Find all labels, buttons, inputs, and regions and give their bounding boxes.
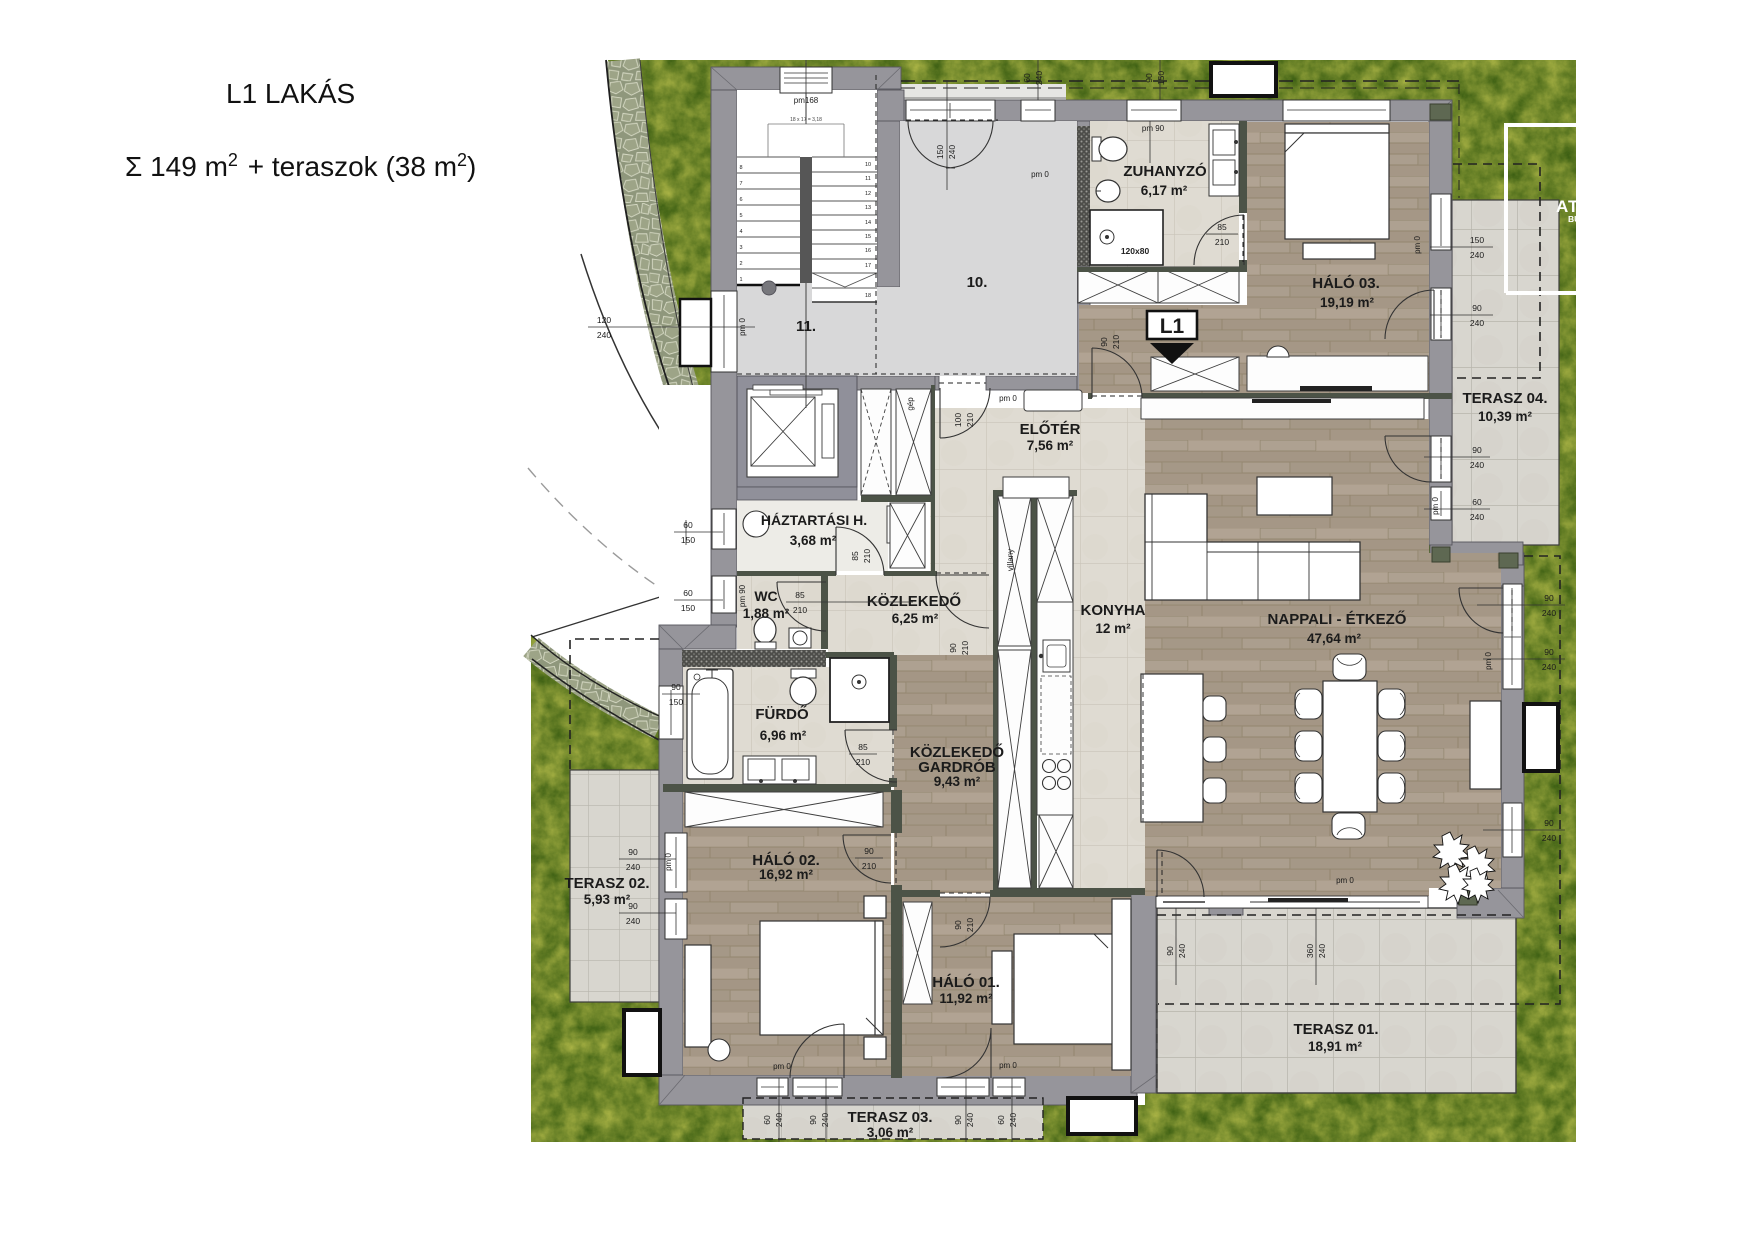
svg-text:10.: 10.: [967, 274, 988, 291]
svg-text:90: 90: [953, 920, 963, 930]
svg-text:2: 2: [739, 261, 742, 267]
svg-text:3: 3: [739, 245, 742, 251]
svg-text:villany: villany: [1006, 549, 1015, 571]
svg-text:HÁLÓ 03.: HÁLÓ 03.: [1312, 274, 1380, 292]
svg-text:9,43 m²: 9,43 m²: [934, 774, 981, 789]
svg-text:NAPPALI - ÉTKEZŐ: NAPPALI - ÉTKEZŐ: [1268, 610, 1407, 628]
svg-text:pm 0: pm 0: [1413, 236, 1422, 254]
svg-text:240: 240: [626, 862, 640, 872]
svg-text:17: 17: [865, 263, 871, 269]
svg-text:60: 60: [762, 1115, 772, 1125]
svg-text:TERASZ 02.: TERASZ 02.: [564, 875, 649, 892]
svg-text:240: 240: [1470, 250, 1484, 260]
svg-text:90: 90: [808, 1115, 818, 1125]
svg-text:90: 90: [1099, 337, 1109, 347]
svg-text:pm 0: pm 0: [1336, 876, 1354, 885]
svg-text:ELŐTÉR: ELŐTÉR: [1020, 420, 1081, 438]
svg-text:90: 90: [671, 682, 681, 692]
svg-text:90: 90: [1165, 946, 1175, 956]
svg-text:85: 85: [850, 551, 860, 561]
svg-text:pm 0: pm 0: [1031, 170, 1049, 179]
svg-text:240: 240: [1470, 318, 1484, 328]
svg-text:Σ 149 m2 + teraszok (38 m2): Σ 149 m2 + teraszok (38 m2): [125, 150, 476, 182]
svg-text:90: 90: [1144, 73, 1154, 83]
svg-text:150: 150: [1470, 235, 1484, 245]
svg-text:150: 150: [935, 145, 945, 159]
svg-text:240: 240: [1034, 71, 1044, 85]
svg-text:1: 1: [739, 277, 742, 283]
svg-text:TERASZ 01.: TERASZ 01.: [1293, 1021, 1378, 1038]
svg-text:6,96 m²: 6,96 m²: [760, 728, 807, 743]
svg-text:pm 0: pm 0: [1431, 497, 1440, 515]
svg-text:90: 90: [1544, 593, 1554, 603]
svg-text:3,68 m²: 3,68 m²: [790, 533, 837, 548]
svg-text:TERASZ 04.: TERASZ 04.: [1462, 390, 1547, 407]
svg-text:240: 240: [965, 1113, 975, 1127]
svg-text:7: 7: [739, 181, 742, 187]
svg-text:47,64 m²: 47,64 m²: [1307, 631, 1362, 646]
svg-text:pm 0: pm 0: [738, 318, 747, 336]
svg-text:90: 90: [1544, 818, 1554, 828]
svg-text:gép: gép: [906, 397, 915, 411]
svg-text:pm 90: pm 90: [1142, 124, 1165, 133]
svg-text:90: 90: [948, 643, 958, 653]
svg-text:240: 240: [1542, 608, 1556, 618]
svg-text:210: 210: [862, 861, 876, 871]
svg-text:90: 90: [1472, 445, 1482, 455]
svg-text:16,92 m²: 16,92 m²: [759, 867, 814, 882]
svg-text:pm168: pm168: [794, 96, 819, 105]
svg-text:85: 85: [795, 590, 805, 600]
svg-text:60: 60: [683, 520, 693, 530]
svg-text:210: 210: [960, 641, 970, 655]
svg-text:150: 150: [669, 697, 683, 707]
svg-text:5,93 m²: 5,93 m²: [584, 892, 631, 907]
svg-text:240: 240: [1008, 1113, 1018, 1127]
svg-text:60: 60: [683, 588, 693, 598]
svg-text:240: 240: [774, 1113, 784, 1127]
svg-text:3,06 m²: 3,06 m²: [867, 1125, 914, 1140]
svg-text:210: 210: [856, 757, 870, 767]
svg-text:14: 14: [865, 220, 871, 226]
svg-text:210: 210: [793, 605, 807, 615]
svg-text:L1: L1: [1160, 315, 1185, 338]
svg-text:5: 5: [739, 213, 742, 219]
svg-text:210: 210: [862, 549, 872, 563]
svg-text:pm 0: pm 0: [999, 1061, 1017, 1070]
svg-text:8: 8: [739, 165, 742, 171]
svg-text:HÁZTARTÁSI H.: HÁZTARTÁSI H.: [761, 512, 867, 528]
svg-text:pm 90: pm 90: [738, 584, 747, 607]
svg-text:11: 11: [865, 176, 871, 182]
svg-text:KÖZLEKEDŐ: KÖZLEKEDŐ: [867, 592, 962, 610]
svg-text:240: 240: [1470, 512, 1484, 522]
svg-text:240: 240: [597, 330, 611, 340]
svg-text:210: 210: [965, 413, 975, 427]
svg-text:TERASZ 03.: TERASZ 03.: [847, 1109, 932, 1126]
svg-text:1,88 m²: 1,88 m²: [743, 606, 790, 621]
svg-text:240: 240: [947, 145, 957, 159]
svg-text:90: 90: [1472, 303, 1482, 313]
svg-text:ZUHANYZÓ: ZUHANYZÓ: [1123, 162, 1207, 180]
svg-text:240: 240: [1317, 944, 1327, 958]
svg-text:90: 90: [953, 1115, 963, 1125]
svg-text:100: 100: [953, 413, 963, 427]
svg-text:240: 240: [1542, 662, 1556, 672]
svg-text:150: 150: [681, 603, 695, 613]
svg-text:7,56 m²: 7,56 m²: [1027, 438, 1074, 453]
svg-text:KONYHA: KONYHA: [1080, 602, 1145, 619]
svg-text:4: 4: [739, 229, 742, 235]
svg-text:90: 90: [864, 846, 874, 856]
svg-text:60: 60: [996, 1115, 1006, 1125]
svg-text:6,25 m²: 6,25 m²: [892, 611, 939, 626]
svg-text:90: 90: [1544, 647, 1554, 657]
svg-text:L1 LAKÁS: L1 LAKÁS: [226, 78, 355, 109]
svg-text:16: 16: [865, 248, 871, 254]
svg-text:15: 15: [865, 234, 871, 240]
svg-text:HÁLÓ 01.: HÁLÓ 01.: [932, 973, 1000, 991]
svg-text:120x80: 120x80: [1121, 246, 1150, 256]
svg-text:6: 6: [739, 197, 742, 203]
svg-text:210: 210: [1111, 335, 1121, 349]
svg-text:10: 10: [865, 162, 871, 168]
svg-text:11,92 m²: 11,92 m²: [939, 991, 993, 1006]
svg-text:90: 90: [628, 901, 638, 911]
svg-text:11.: 11.: [796, 318, 816, 335]
svg-text:pm 0: pm 0: [773, 1062, 791, 1071]
svg-text:120: 120: [597, 315, 611, 325]
svg-text:18: 18: [865, 293, 871, 299]
svg-text:18,91 m²: 18,91 m²: [1308, 1039, 1363, 1054]
svg-text:210: 210: [965, 918, 975, 932]
svg-text:12: 12: [865, 191, 871, 197]
svg-text:WC: WC: [754, 588, 777, 604]
svg-text:19,19 m²: 19,19 m²: [1320, 295, 1375, 310]
svg-text:pm 0: pm 0: [664, 853, 673, 871]
svg-text:150: 150: [1156, 71, 1166, 85]
svg-text:60: 60: [1022, 73, 1032, 83]
svg-text:210: 210: [1215, 237, 1229, 247]
svg-text:90: 90: [628, 847, 638, 857]
svg-text:360: 360: [1305, 944, 1315, 958]
svg-text:12 m²: 12 m²: [1095, 621, 1131, 636]
svg-text:60: 60: [1472, 497, 1482, 507]
svg-text:240: 240: [820, 1113, 830, 1127]
svg-text:85: 85: [1217, 222, 1227, 232]
svg-text:pm 0: pm 0: [999, 394, 1017, 403]
svg-text:85: 85: [858, 742, 868, 752]
svg-text:BUDAI: BUDAI: [1568, 214, 1595, 224]
svg-text:240: 240: [1470, 460, 1484, 470]
svg-text:10,39 m²: 10,39 m²: [1478, 409, 1533, 424]
svg-text:240: 240: [1542, 833, 1556, 843]
svg-text:6,17 m²: 6,17 m²: [1141, 183, 1188, 198]
svg-text:240: 240: [626, 916, 640, 926]
svg-text:240: 240: [1177, 944, 1187, 958]
svg-text:pm 0: pm 0: [1484, 652, 1493, 670]
svg-text:150: 150: [681, 535, 695, 545]
svg-text:FÜRDŐ: FÜRDŐ: [755, 705, 809, 723]
svg-text:13: 13: [865, 205, 871, 211]
